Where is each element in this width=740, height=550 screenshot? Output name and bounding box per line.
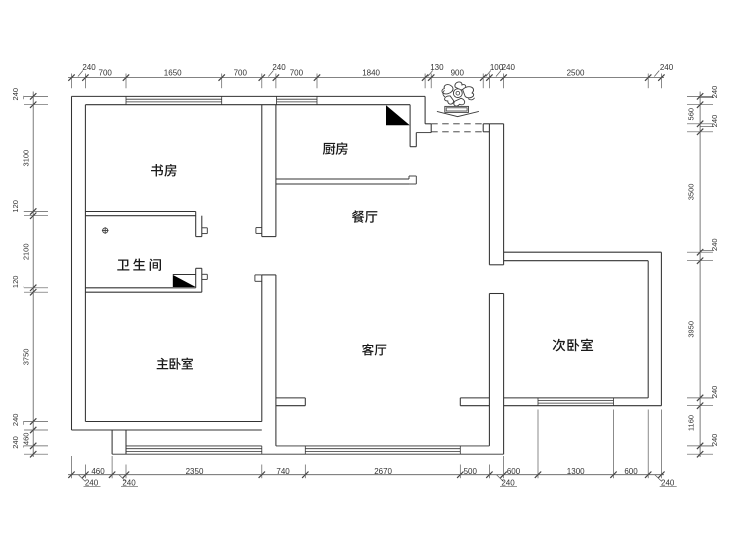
svg-text:240: 240 — [82, 63, 96, 72]
svg-text:3950: 3950 — [687, 321, 696, 338]
svg-text:1160: 1160 — [687, 415, 696, 431]
svg-text:240: 240 — [11, 436, 20, 449]
svg-text:1650: 1650 — [164, 69, 182, 78]
svg-text:2670: 2670 — [374, 467, 392, 476]
svg-text:1300: 1300 — [567, 467, 585, 476]
svg-text:460: 460 — [22, 433, 31, 446]
svg-text:2500: 2500 — [567, 69, 585, 78]
svg-text:460: 460 — [91, 467, 105, 476]
svg-text:240: 240 — [710, 86, 719, 99]
svg-text:240: 240 — [11, 414, 20, 427]
svg-text:600: 600 — [507, 467, 521, 476]
svg-text:500: 500 — [464, 467, 478, 476]
svg-text:740: 740 — [276, 467, 290, 476]
svg-text:240: 240 — [710, 386, 719, 399]
svg-text:2100: 2100 — [22, 243, 31, 260]
svg-text:240: 240 — [502, 63, 516, 72]
svg-text:900: 900 — [451, 69, 465, 78]
svg-text:240: 240 — [710, 115, 719, 128]
svg-text:120: 120 — [11, 276, 20, 289]
svg-text:2350: 2350 — [186, 467, 204, 476]
svg-text:700: 700 — [99, 69, 113, 78]
svg-text:130: 130 — [430, 63, 444, 72]
svg-text:240: 240 — [710, 434, 719, 447]
svg-text:240: 240 — [660, 63, 674, 72]
svg-text:700: 700 — [234, 69, 248, 78]
svg-text:240: 240 — [710, 238, 719, 251]
svg-text:3750: 3750 — [22, 349, 31, 366]
svg-text:600: 600 — [624, 467, 638, 476]
svg-text:3500: 3500 — [687, 184, 696, 201]
svg-text:700: 700 — [290, 69, 304, 78]
svg-text:1840: 1840 — [362, 69, 380, 78]
svg-text:560: 560 — [687, 108, 696, 121]
svg-text:3100: 3100 — [22, 150, 31, 167]
svg-text:240: 240 — [11, 88, 20, 101]
svg-text:240: 240 — [272, 63, 286, 72]
svg-text:120: 120 — [11, 200, 20, 213]
